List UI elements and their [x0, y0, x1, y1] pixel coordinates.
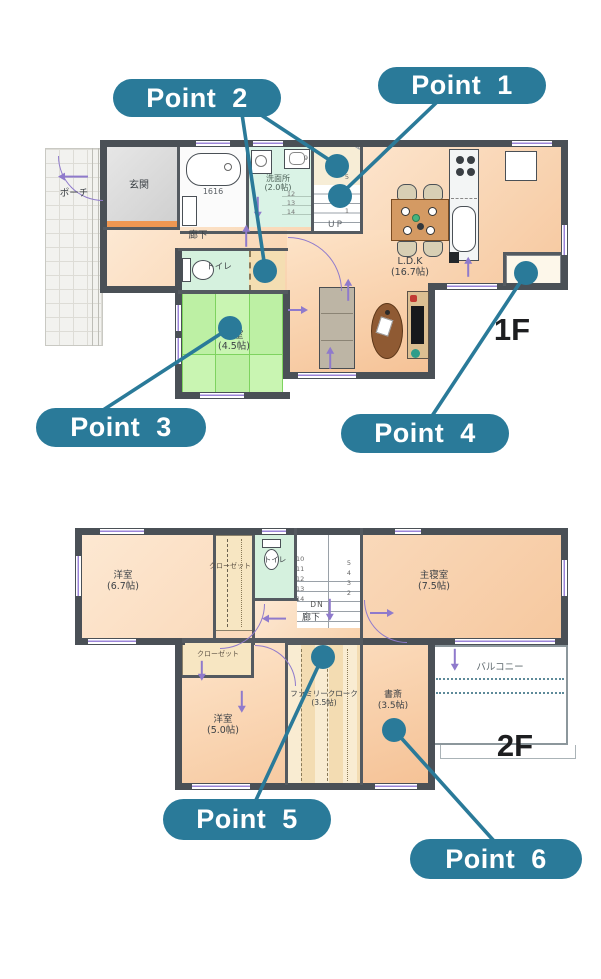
deco-red-icon: [410, 295, 417, 302]
point-3-badge: Point 3: [36, 408, 206, 447]
room-label-toilet1: トイレ: [196, 262, 242, 272]
plant-icon: [411, 349, 420, 358]
stair-number: 13: [284, 200, 298, 208]
stair-number: 12: [296, 576, 312, 584]
stair-number: 11: [296, 566, 312, 574]
bath-drain-icon: [224, 163, 232, 171]
dining-chair: [423, 241, 443, 257]
dining-chair: [423, 184, 443, 200]
stair-number: 12: [284, 191, 298, 199]
stair-number: 4: [344, 570, 354, 578]
door-swing-arrow: [329, 349, 331, 369]
door-swing-arrow: [347, 281, 349, 301]
stair-number: 1: [342, 208, 352, 216]
door-swing-arrow: [257, 197, 259, 217]
stair-number: 3: [344, 580, 354, 588]
door-swing-arrow: [264, 618, 286, 620]
bath-counter: [182, 196, 197, 226]
stair-number: 13: [296, 586, 312, 594]
room-label-cloak: ファミリークローク (3.5帖): [281, 690, 367, 708]
tatami-mat: [215, 354, 250, 393]
bathtub: [186, 153, 241, 186]
room-label-ldk: L.D.K (16.7帖): [378, 256, 442, 278]
stair-number: 14: [296, 596, 312, 604]
stair-number: 5: [344, 560, 354, 568]
door-swing-arrow: [288, 309, 306, 311]
toilet2-tank: [262, 539, 281, 548]
family-cloak-floor: [287, 645, 362, 785]
balcony-dots: [436, 678, 564, 680]
balcony-dots: [436, 692, 564, 694]
dining-chair: [397, 241, 417, 257]
point-2-badge: Point 2: [113, 79, 281, 117]
stair-number: 5: [342, 174, 352, 182]
refrigerator: [505, 151, 537, 181]
washing-machine-drum-icon: [255, 155, 267, 167]
room-label-washitsu: 和室 (4.5帖): [206, 330, 262, 352]
stove-burner-icon: [467, 168, 475, 176]
stair-number: 14: [284, 209, 298, 217]
counter-divider: [451, 198, 477, 199]
stair-number: 10: [296, 556, 312, 564]
stair1-alcove-floor: [249, 251, 285, 291]
door-swing-arrow: [201, 661, 203, 679]
floor-plan-page: ポーチ 玄関 1616 洗面所 (2.0帖) 廊下 トイレ 和室 (4.5帖) …: [0, 0, 601, 979]
room-label-west1: 洋室 (6.7帖): [92, 570, 154, 592]
stove-burner-icon: [467, 156, 475, 164]
sofa: [319, 287, 355, 369]
door-swing-arrow: [370, 612, 392, 614]
tatami-mat: [182, 354, 216, 393]
plate-icon: [428, 207, 437, 216]
room-label-master: 主寝室 (7.5帖): [398, 570, 470, 592]
closet2-floor: [182, 640, 253, 677]
tv-screen: [411, 306, 424, 344]
knob-icon: [385, 310, 390, 315]
room-label-hall2: 廊下: [290, 613, 332, 624]
floor-tag-2f: 2F: [485, 728, 545, 765]
stove-burner-icon: [456, 156, 464, 164]
point-1-badge: Point 1: [378, 67, 546, 104]
kitchen-sink: [452, 206, 476, 252]
room-label-genkan: 玄関: [108, 180, 170, 192]
ldk-niche: [506, 255, 561, 284]
door-swing-arrow: [467, 259, 469, 277]
point-4-badge: Point 4: [341, 414, 509, 453]
plate-icon: [403, 226, 412, 235]
tatami-mat: [249, 354, 283, 393]
room-label-closet2: クローゼット: [184, 650, 252, 658]
point-5-badge: Point 5: [163, 799, 331, 840]
dining-chair: [397, 184, 417, 200]
bath-size-label: 1616: [188, 187, 238, 196]
stair-number: 9: [300, 155, 312, 163]
room-label-balcony: バルコニー: [445, 662, 555, 673]
room-label-toilet2: トイレ: [252, 556, 298, 565]
door-swing-arrow: [60, 176, 88, 178]
room-label-porch: ポーチ: [44, 188, 104, 199]
room-label-west2: 洋室 (5.0帖): [192, 714, 254, 736]
toilet1-tank: [182, 258, 191, 282]
stair-number: 2: [344, 590, 354, 598]
door-swing-arrow: [241, 691, 243, 711]
stove-burner-icon: [456, 168, 464, 176]
bowl-icon: [417, 223, 424, 230]
cup-icon: [412, 214, 420, 222]
stair-number: 2: [342, 199, 352, 207]
room-label-study: 書斎 (3.5帖): [362, 690, 424, 711]
dining-table: [391, 199, 449, 241]
plate-icon: [401, 207, 410, 216]
door-swing-arrow: [245, 227, 247, 247]
stairs-1f-winder: [314, 147, 360, 185]
dishwasher: [449, 252, 459, 263]
plate-icon: [426, 226, 435, 235]
room-label-corridor: 廊下: [176, 230, 220, 241]
stairs-up-label: UP: [314, 220, 358, 231]
point-6-badge: Point 6: [410, 839, 582, 879]
floor-tag-1f: 1F: [482, 312, 542, 349]
room-label-washroom: 洗面所 (2.0帖): [247, 174, 309, 193]
